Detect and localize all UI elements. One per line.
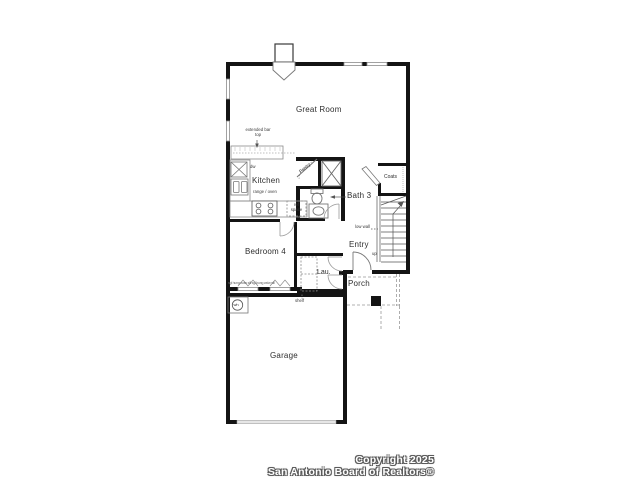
stairs-up-arrow-icon [393, 201, 404, 257]
toilet-icon [311, 189, 323, 204]
watermark-line1: Copyright 2025 [268, 455, 434, 467]
note-extended-bar-top: extended bar top [242, 128, 274, 138]
window-icon [270, 287, 290, 290]
exterior-walls [226, 62, 410, 424]
garage-door-icon [237, 421, 336, 424]
range-icon [252, 201, 277, 216]
dishwasher-icon [231, 162, 247, 177]
bath3-fixtures [309, 161, 341, 219]
window-icon [226, 79, 229, 99]
room-label-porch: Porch [348, 279, 370, 288]
washer-dryer-icon [301, 257, 317, 291]
porch-post-icon [371, 296, 381, 306]
room-label-kitchen: Kitchen [252, 176, 280, 185]
bedroom4-door-icon [280, 222, 294, 236]
room-label-bedroom4: Bedroom 4 [245, 247, 286, 256]
entry-door-icon [353, 252, 371, 270]
copyright-watermark: Copyright 2025 San Antonio Board of Real… [268, 455, 434, 478]
note-window-spec: sgl hung wdw sill sgl hung wdw sill [228, 281, 304, 285]
room-label-bath3: Bath 3 [347, 191, 371, 200]
floorplan-linework [0, 0, 640, 480]
room-label-coats: Coats [384, 174, 397, 180]
bath-vanity-icon [309, 204, 328, 218]
bath3-arrow-icon [330, 195, 335, 199]
window-icon [238, 287, 258, 290]
room-label-laundry: Lau. [317, 269, 331, 276]
fireplace-icon [273, 44, 295, 80]
note-low-wall: low wall [355, 225, 370, 230]
shower-icon [322, 161, 341, 186]
kitchen-sink-icon [231, 179, 248, 195]
floorplan-image: Great Room Kitchen Bath 3 Bedroom 4 Entr… [0, 0, 640, 480]
note-dishwasher: dw [250, 165, 256, 170]
room-label-great-room: Great Room [296, 105, 342, 114]
note-water-heater: wh [234, 302, 239, 307]
note-range-oven: range / oven [252, 190, 278, 195]
room-label-garage: Garage [270, 351, 298, 360]
note-stairs-up: up [372, 252, 377, 257]
window-icon [367, 62, 387, 65]
bar-counter-hatch [235, 147, 280, 151]
note-shelf: shelf [295, 299, 304, 304]
watermark-line2: San Antonio Board of Realtors® [268, 467, 434, 479]
window-symbols [226, 62, 387, 290]
room-label-entry: Entry [349, 240, 369, 249]
window-icon [344, 62, 362, 65]
window-icon [226, 121, 229, 141]
bath3-door-icon [324, 204, 339, 219]
note-ref-space: ref space [288, 203, 305, 213]
